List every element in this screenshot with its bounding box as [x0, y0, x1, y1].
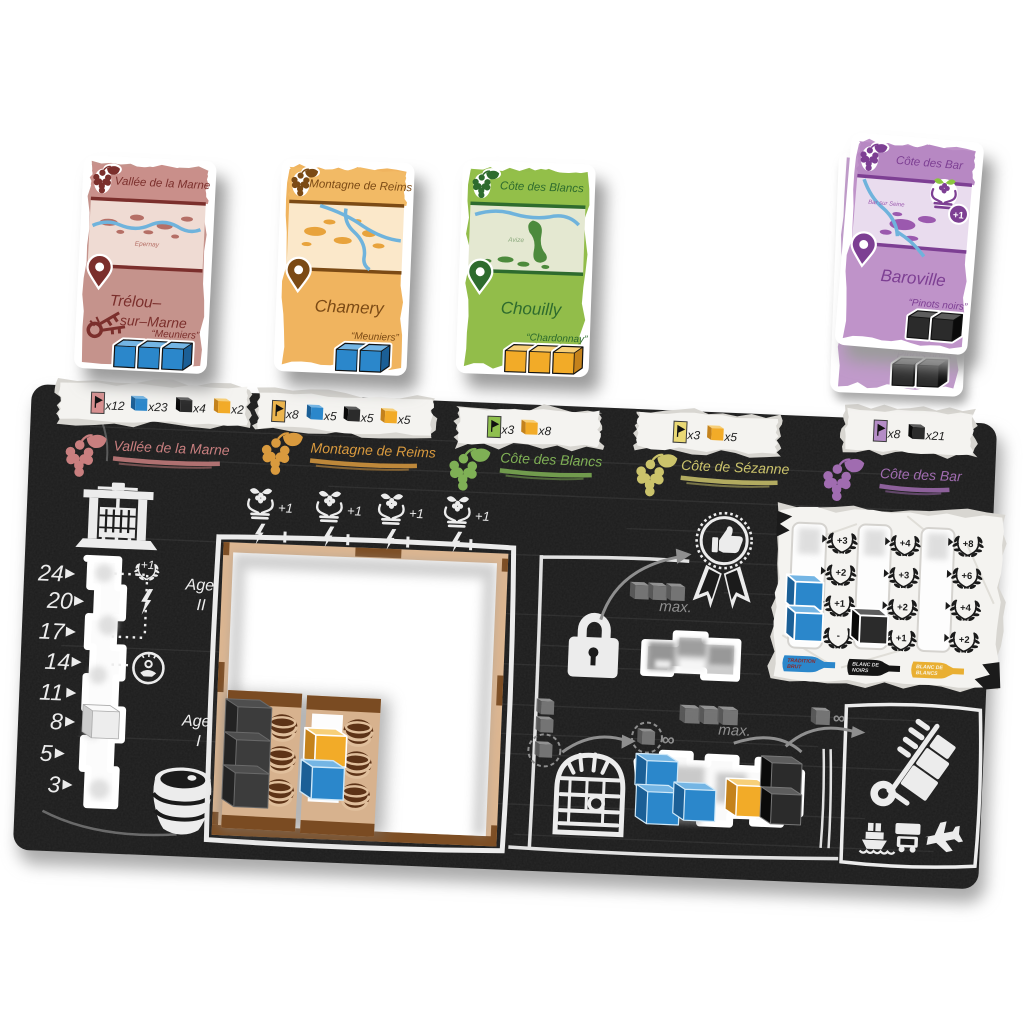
- svg-text:x4: x4: [192, 401, 206, 415]
- svg-text:+1: +1: [475, 508, 490, 524]
- svg-text:x23: x23: [147, 400, 168, 415]
- svg-text:Chouilly: Chouilly: [500, 298, 563, 319]
- svg-text:+1: +1: [141, 558, 155, 573]
- svg-text:Côte des Bar: Côte des Bar: [880, 465, 964, 484]
- svg-text:x8: x8: [886, 427, 901, 442]
- svg-text:max.: max.: [659, 598, 692, 616]
- svg-text:x5: x5: [723, 430, 738, 445]
- svg-text:Epernay: Epernay: [135, 241, 160, 249]
- svg-text:BLANCS: BLANCS: [916, 670, 938, 677]
- svg-text:“Meuniers”: “Meuniers”: [351, 331, 400, 344]
- svg-text:Trélou–: Trélou–: [109, 292, 162, 312]
- svg-text:Age: Age: [181, 712, 211, 730]
- svg-text:x2: x2: [230, 402, 244, 416]
- svg-text:17: 17: [38, 618, 66, 645]
- svg-text:-: -: [837, 630, 841, 641]
- svg-text:x12: x12: [104, 399, 125, 414]
- svg-text:II: II: [196, 597, 206, 614]
- svg-text:max.: max.: [718, 722, 751, 740]
- svg-text:+1: +1: [347, 503, 362, 519]
- svg-text:+6: +6: [961, 570, 972, 581]
- svg-text:+3: +3: [837, 534, 848, 545]
- svg-text:x8: x8: [285, 407, 300, 422]
- svg-text:+2: +2: [835, 566, 846, 577]
- svg-text:+8: +8: [963, 538, 974, 549]
- svg-text:+4: +4: [960, 602, 972, 613]
- svg-text:+1: +1: [409, 506, 424, 522]
- svg-text:8: 8: [50, 708, 64, 735]
- svg-text:20: 20: [46, 587, 74, 614]
- svg-text:+2: +2: [959, 634, 970, 645]
- svg-text:“Chardonnay”: “Chardonnay”: [526, 332, 588, 345]
- svg-text:x8: x8: [537, 424, 551, 438]
- svg-text:x3: x3: [500, 423, 514, 437]
- svg-text:24: 24: [37, 559, 65, 586]
- svg-text:3: 3: [47, 771, 61, 798]
- svg-text:+1: +1: [278, 500, 293, 516]
- svg-text:NOIRS: NOIRS: [852, 668, 869, 675]
- svg-text:11: 11: [39, 679, 64, 706]
- svg-text:Age: Age: [184, 576, 214, 594]
- svg-text:x3: x3: [686, 428, 701, 443]
- svg-text:+1: +1: [896, 632, 907, 643]
- svg-text:+2: +2: [897, 601, 908, 612]
- svg-text:+1: +1: [953, 210, 965, 222]
- svg-text:Avize: Avize: [507, 237, 524, 245]
- svg-text:+3: +3: [898, 569, 909, 580]
- svg-text:14: 14: [44, 648, 71, 675]
- svg-text:BRUT: BRUT: [787, 664, 802, 671]
- svg-text:x5: x5: [323, 409, 338, 424]
- svg-text:x21: x21: [924, 428, 945, 443]
- svg-text:5: 5: [39, 740, 53, 767]
- svg-text:x5: x5: [396, 412, 411, 427]
- svg-text:x5: x5: [360, 411, 375, 426]
- svg-text:+4: +4: [900, 537, 912, 548]
- svg-text:∞: ∞: [661, 729, 675, 750]
- svg-text:+1: +1: [834, 597, 845, 608]
- svg-text:∞: ∞: [833, 708, 846, 727]
- svg-text:Chamery: Chamery: [314, 296, 385, 318]
